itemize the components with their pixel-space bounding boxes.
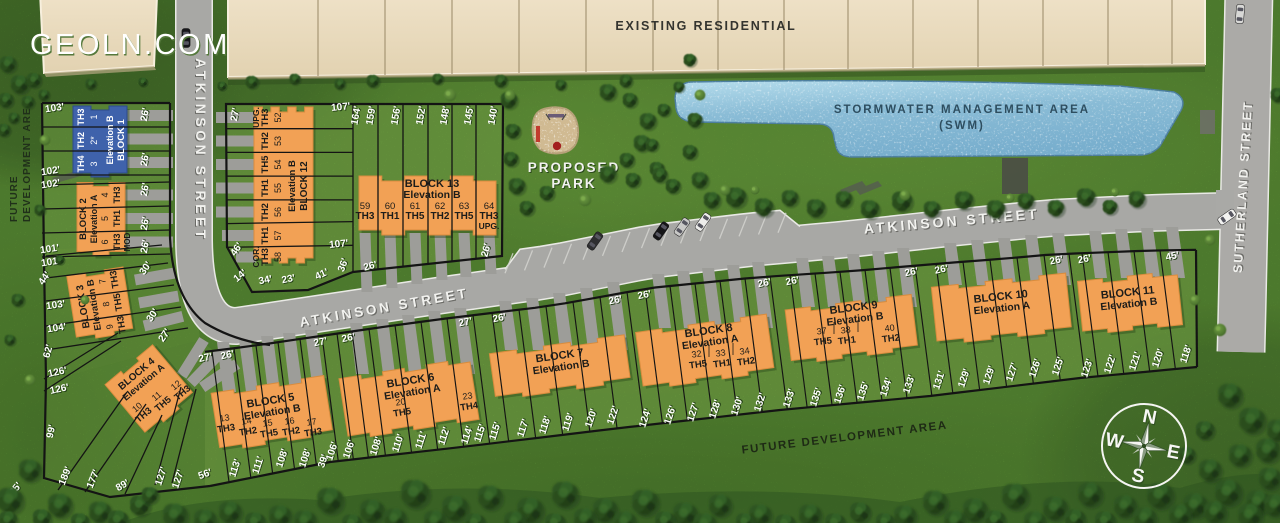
- svg-text:TH1: TH1: [837, 334, 857, 347]
- svg-text:TH4: TH4: [76, 155, 86, 172]
- svg-text:COR.: COR.: [251, 246, 261, 267]
- svg-text:52: 52: [273, 112, 283, 122]
- svg-text:Elevation B: Elevation B: [105, 115, 115, 165]
- svg-text:TH2: TH2: [76, 132, 86, 149]
- svg-text:1: 1: [89, 114, 99, 119]
- svg-text:55: 55: [273, 183, 283, 193]
- svg-text:107': 107': [331, 101, 351, 114]
- svg-text:56: 56: [273, 207, 283, 217]
- svg-text:37: 37: [816, 325, 827, 336]
- svg-text:FUTURE: FUTURE: [9, 175, 20, 222]
- svg-text:38: 38: [840, 324, 851, 335]
- svg-text:58: 58: [273, 252, 283, 262]
- svg-text:33: 33: [715, 347, 726, 358]
- svg-text:TH5: TH5: [813, 335, 833, 348]
- svg-text:4: 4: [100, 192, 110, 197]
- svg-text:26': 26': [139, 216, 152, 231]
- svg-text:GEOLN.COM: GEOLN.COM: [30, 29, 230, 61]
- svg-text:Elevation B: Elevation B: [403, 189, 461, 201]
- svg-text:54: 54: [273, 159, 283, 169]
- svg-text:TH3: TH3: [76, 108, 86, 125]
- svg-text:MOD: MOD: [123, 232, 132, 251]
- svg-text:TH1: TH1: [381, 211, 400, 222]
- svg-text:53: 53: [273, 136, 283, 146]
- svg-text:107': 107': [329, 238, 349, 251]
- svg-text:26': 26': [139, 239, 152, 254]
- svg-text:(SWM): (SWM): [939, 120, 985, 132]
- svg-text:TH1: TH1: [260, 226, 271, 245]
- svg-text:57: 57: [273, 230, 283, 240]
- svg-text:STORMWATER MANAGEMENT AREA: STORMWATER MANAGEMENT AREA: [834, 104, 1090, 116]
- svg-text:TH2: TH2: [881, 332, 900, 345]
- svg-text:TH3: TH3: [112, 186, 122, 203]
- svg-text:EXISTING RESIDENTIAL: EXISTING RESIDENTIAL: [615, 19, 796, 33]
- svg-text:ATKINSON STREET: ATKINSON STREET: [193, 58, 209, 242]
- svg-text:40: 40: [884, 322, 895, 333]
- svg-text:TH5: TH5: [260, 155, 271, 174]
- svg-text:TH5: TH5: [406, 211, 425, 222]
- svg-text:TH3: TH3: [356, 211, 375, 222]
- svg-text:5: 5: [100, 216, 110, 221]
- svg-text:3: 3: [89, 161, 99, 166]
- svg-text:26': 26': [139, 107, 152, 122]
- svg-text:TH2: TH2: [431, 211, 450, 222]
- svg-text:34: 34: [739, 345, 750, 356]
- svg-text:TH3: TH3: [260, 248, 271, 266]
- svg-text:TH3: TH3: [260, 109, 271, 127]
- svg-text:DEVELOPMENT AREA: DEVELOPMENT AREA: [22, 99, 33, 222]
- svg-text:UPG.: UPG.: [479, 221, 500, 231]
- svg-text:Elevation A: Elevation A: [89, 194, 99, 243]
- svg-text:TH2: TH2: [260, 203, 271, 221]
- svg-text:TH2: TH2: [260, 132, 271, 150]
- svg-text:BLOCK 1: BLOCK 1: [116, 118, 127, 160]
- svg-text:BLOCK 12: BLOCK 12: [299, 161, 310, 211]
- svg-text:TH5: TH5: [455, 211, 474, 222]
- svg-text:2*: 2*: [89, 136, 99, 145]
- svg-text:27': 27': [229, 107, 242, 122]
- svg-text:TH1: TH1: [260, 178, 271, 197]
- svg-text:PARK: PARK: [551, 176, 596, 191]
- svg-text:32: 32: [691, 348, 702, 359]
- svg-text:Elevation B: Elevation B: [287, 160, 298, 212]
- svg-text:6: 6: [100, 239, 110, 244]
- svg-text:UPG.: UPG.: [251, 107, 261, 128]
- svg-text:26': 26': [139, 182, 152, 197]
- svg-text:TH1: TH1: [112, 210, 122, 227]
- svg-text:26': 26': [139, 152, 152, 167]
- svg-text:BLOCK 2: BLOCK 2: [78, 198, 89, 240]
- svg-text:TH3: TH3: [112, 233, 122, 250]
